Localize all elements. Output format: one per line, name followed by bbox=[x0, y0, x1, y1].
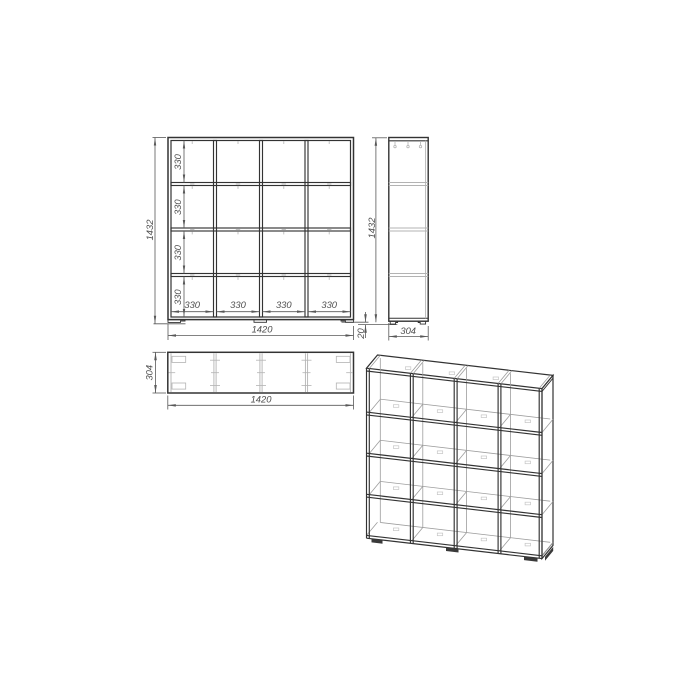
svg-text:330: 330 bbox=[172, 244, 183, 260]
svg-text:1432: 1432 bbox=[366, 217, 377, 239]
svg-text:330: 330 bbox=[172, 153, 183, 169]
svg-text:330: 330 bbox=[172, 289, 183, 305]
svg-text:20: 20 bbox=[355, 328, 366, 340]
svg-text:330: 330 bbox=[230, 299, 246, 310]
svg-text:1420: 1420 bbox=[252, 324, 274, 335]
svg-text:330: 330 bbox=[184, 299, 200, 310]
svg-text:1432: 1432 bbox=[144, 219, 155, 241]
svg-text:1420: 1420 bbox=[251, 393, 273, 404]
svg-text:304: 304 bbox=[400, 325, 416, 336]
svg-text:304: 304 bbox=[143, 365, 154, 381]
svg-text:330: 330 bbox=[276, 299, 292, 310]
svg-text:330: 330 bbox=[172, 199, 183, 215]
svg-text:330: 330 bbox=[321, 299, 337, 310]
